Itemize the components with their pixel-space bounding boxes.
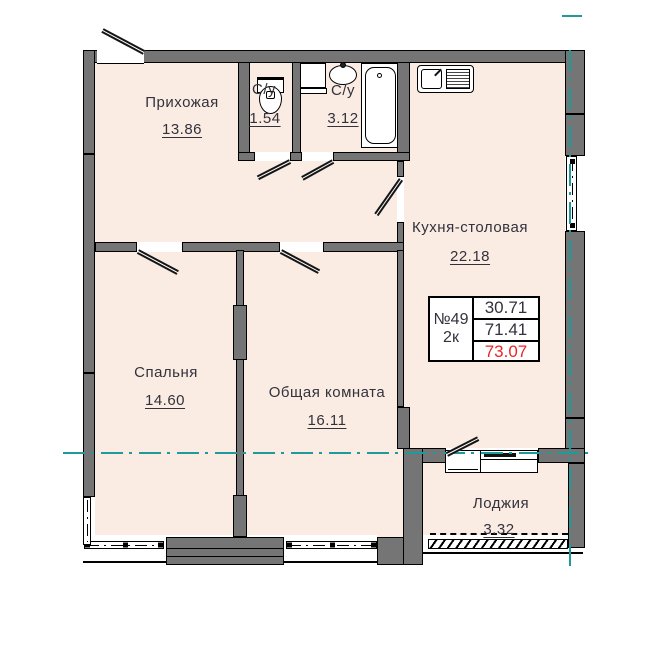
wall-joint	[84, 372, 94, 374]
wall-hall-rooms	[95, 242, 137, 252]
window-glass-line	[87, 500, 88, 542]
axis-line-horizontal	[63, 452, 592, 454]
wall-top	[83, 50, 585, 63]
window-living	[286, 541, 377, 549]
window-mullion	[158, 543, 163, 548]
outer-edge-loggia	[423, 552, 583, 554]
axis-mark-top	[562, 15, 582, 17]
total-area-value: 73.07	[474, 342, 538, 362]
room-area-hallway: 13.86	[162, 121, 202, 138]
slab-line	[167, 548, 283, 549]
floor-plan: Прихожая 13.86 С/у 1.54 С/у 3.12 Кухня-с…	[0, 0, 651, 651]
wall-hall-rooms	[323, 242, 404, 252]
wall-bedroom-living	[236, 250, 244, 537]
wall-bottom-center-block	[166, 537, 284, 565]
room-label-hallway: Прихожая	[145, 94, 219, 111]
wall-living-kitchen	[397, 250, 404, 407]
opening-wc	[255, 152, 290, 161]
wall-wc-left	[238, 62, 250, 161]
room-label-loggia: Лоджия	[473, 495, 529, 512]
room-area-kitchen: 22.18	[450, 248, 490, 265]
room-area-living: 16.11	[308, 412, 347, 429]
apartment-info-table: №49 2к 30.71 71.41 73.07	[428, 296, 540, 362]
wall-wc-mid	[292, 62, 301, 161]
window-bedroom-corner	[83, 497, 91, 545]
living-area-value: 30.71	[474, 298, 538, 320]
door-threshold	[448, 469, 478, 470]
room-label-bathroom: С/у	[331, 82, 355, 99]
window-mullion	[371, 543, 376, 548]
apartment-areas-column: 30.71 71.41 73.07	[474, 298, 538, 360]
unit-divider	[480, 451, 481, 472]
room-label-wc: С/у	[252, 81, 276, 98]
room-area-wc: 1.54	[249, 110, 280, 127]
wall-loggia-left	[403, 448, 423, 565]
wall-kitchen-door-bottom	[397, 222, 404, 243]
room-label-bedroom: Спальня	[134, 364, 198, 381]
loggia-railing	[428, 539, 568, 549]
window-mullion	[287, 543, 292, 548]
wall-joint	[84, 153, 94, 155]
apartment-number: №49	[434, 311, 469, 329]
axis-line-vertical	[569, 50, 571, 567]
wall-bath-bottom	[333, 152, 410, 161]
washing-machine	[298, 63, 326, 88]
apartment-area-value: 71.41	[474, 320, 538, 342]
wall-bottom-right-block	[377, 537, 404, 565]
wall-wc-bottom	[238, 152, 255, 161]
window-mullion	[123, 543, 128, 548]
kitchen-sink-drainboard	[446, 69, 470, 89]
wall-hall-rooms	[182, 242, 280, 252]
apartment-id-cell: №49 2к	[430, 298, 474, 360]
room-label-living: Общая комната	[269, 384, 385, 401]
wall-kitchen-bottom	[538, 448, 585, 463]
bathtub-inner	[365, 67, 396, 144]
room-label-kitchen: Кухня-столовая	[412, 219, 528, 236]
wall-kitchen-door-top	[397, 161, 404, 177]
slab-line	[167, 556, 283, 557]
wall-bedroom-living-pilaster	[233, 305, 247, 360]
room-area-bedroom: 14.60	[145, 392, 185, 409]
window-glass-line	[572, 159, 573, 228]
opening-bathroom	[302, 152, 333, 161]
wall-left	[83, 50, 95, 497]
window-kitchen-right	[566, 156, 577, 231]
wall-right-upper	[565, 50, 585, 156]
floor-bedroom-living	[95, 448, 403, 537]
room-area-bathroom: 3.12	[327, 110, 358, 127]
opening-bedroom	[137, 242, 182, 252]
window-bedroom	[84, 541, 164, 549]
room-area-loggia: 3.32	[483, 521, 514, 538]
wall-right-lower	[565, 231, 585, 463]
window-mullion	[330, 543, 335, 548]
wall-wc-bottom	[290, 152, 302, 161]
wall-living-kitchen-pilaster	[397, 407, 410, 449]
wall-bath-right	[397, 62, 410, 161]
wall-bedroom-living-pilaster	[233, 495, 247, 537]
bathtub-drain	[377, 73, 382, 78]
opening-living	[280, 242, 323, 252]
unit-glass-line	[481, 459, 537, 460]
apartment-type: 2к	[443, 329, 459, 347]
